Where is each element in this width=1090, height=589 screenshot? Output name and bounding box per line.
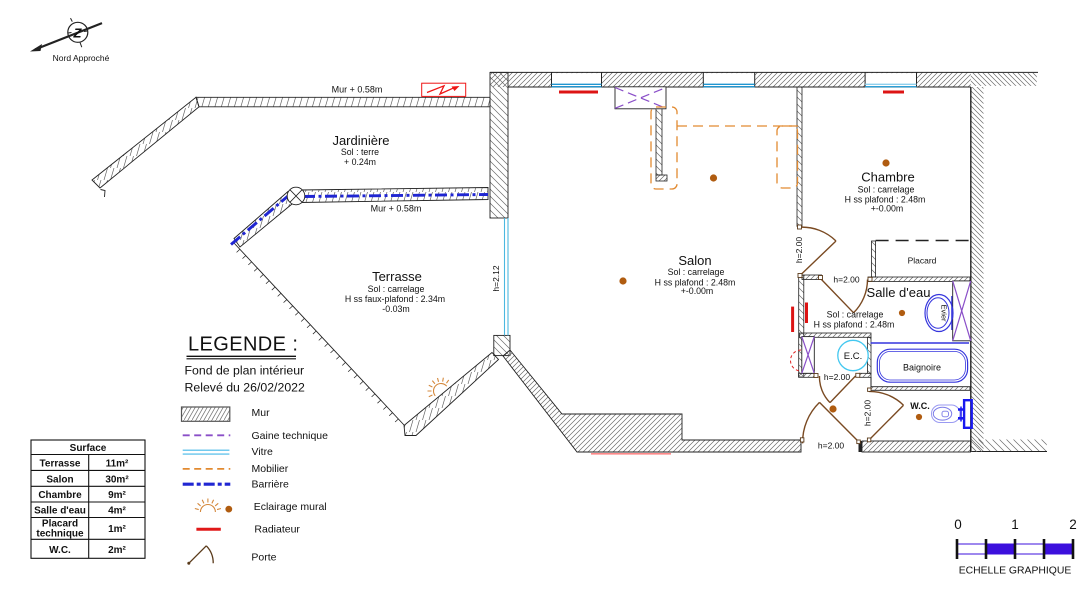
svg-text:Mur + 0.58m: Mur + 0.58m xyxy=(332,85,383,95)
svg-text:Mobilier: Mobilier xyxy=(252,463,289,475)
svg-text:ECHELLE GRAPHIQUE: ECHELLE GRAPHIQUE xyxy=(959,566,1072,577)
svg-text:9m²: 9m² xyxy=(108,490,126,501)
svg-text:technique: technique xyxy=(36,529,84,540)
svg-text:Salon: Salon xyxy=(678,253,711,268)
svg-text:h=2.00: h=2.00 xyxy=(794,237,804,264)
svg-text:Terrasse: Terrasse xyxy=(40,459,81,470)
svg-text:Baignoire: Baignoire xyxy=(903,363,941,373)
svg-text:Salle d'eau: Salle d'eau xyxy=(34,506,86,517)
svg-text:11m²: 11m² xyxy=(106,459,129,470)
svg-text:Mur: Mur xyxy=(252,407,271,419)
svg-text:Chambre: Chambre xyxy=(38,490,82,501)
svg-text:Sol : carrelage: Sol : carrelage xyxy=(368,284,425,294)
svg-text:1: 1 xyxy=(1011,517,1019,532)
svg-text:Salon: Salon xyxy=(46,475,73,486)
svg-text:Sol : carrelage: Sol : carrelage xyxy=(827,310,884,320)
svg-text:Evier: Evier xyxy=(940,304,949,322)
svg-text:Surface: Surface xyxy=(70,443,107,454)
svg-text:-0.03m: -0.03m xyxy=(382,304,409,314)
svg-text:H ss faux-plafond : 2.34m: H ss faux-plafond : 2.34m xyxy=(345,294,445,304)
svg-text:Terrasse: Terrasse xyxy=(372,269,422,284)
svg-text:h=2.00: h=2.00 xyxy=(863,400,873,427)
svg-text:+-0.00m: +-0.00m xyxy=(681,286,714,296)
svg-text:Relevé du 26/02/2022: Relevé du 26/02/2022 xyxy=(185,381,305,395)
svg-text:Z: Z xyxy=(73,26,83,41)
svg-text:Radiateur: Radiateur xyxy=(254,524,300,536)
svg-text:30m²: 30m² xyxy=(105,475,129,486)
svg-text:Gaine technique: Gaine technique xyxy=(252,430,329,442)
svg-text:W.C.: W.C. xyxy=(49,545,71,556)
svg-text:+-0.00m: +-0.00m xyxy=(871,204,904,214)
svg-text:1m²: 1m² xyxy=(108,524,126,535)
svg-text:Salle d'eau: Salle d'eau xyxy=(867,285,931,300)
svg-text:Placard: Placard xyxy=(908,256,937,266)
svg-text:LEGENDE :: LEGENDE : xyxy=(188,334,298,356)
svg-text:h=2.00: h=2.00 xyxy=(818,441,845,451)
svg-text:h=2.00: h=2.00 xyxy=(824,372,851,382)
svg-text:Barrière: Barrière xyxy=(252,479,290,491)
svg-text:h=2.12: h=2.12 xyxy=(491,265,501,292)
svg-text:Vitre: Vitre xyxy=(252,446,274,458)
svg-text:Sol : carrelage: Sol : carrelage xyxy=(858,185,915,195)
svg-text:0: 0 xyxy=(954,517,962,532)
svg-text:Eclairage mural: Eclairage mural xyxy=(254,501,327,513)
svg-text:W.C.: W.C. xyxy=(910,401,930,411)
svg-text:Porte: Porte xyxy=(251,552,276,564)
svg-text:Sol : carrelage: Sol : carrelage xyxy=(668,267,725,277)
svg-text:Sol : terre: Sol : terre xyxy=(341,147,379,157)
svg-text:+ 0.24m: + 0.24m xyxy=(344,157,376,167)
svg-text:4m²: 4m² xyxy=(108,506,126,517)
svg-text:h=2.00: h=2.00 xyxy=(833,275,860,285)
svg-text:Chambre: Chambre xyxy=(861,170,914,185)
svg-text:2: 2 xyxy=(1069,517,1077,532)
svg-text:Jardinière: Jardinière xyxy=(332,133,389,148)
svg-text:2m²: 2m² xyxy=(108,545,126,556)
svg-text:E.C.: E.C. xyxy=(844,351,862,362)
svg-text:Nord Approché: Nord Approché xyxy=(53,53,110,63)
svg-text:Mur + 0.58m: Mur + 0.58m xyxy=(371,204,422,214)
svg-text:H ss plafond : 2.48m: H ss plafond : 2.48m xyxy=(814,320,895,330)
svg-text:Fond de plan intérieur: Fond de plan intérieur xyxy=(185,364,305,378)
